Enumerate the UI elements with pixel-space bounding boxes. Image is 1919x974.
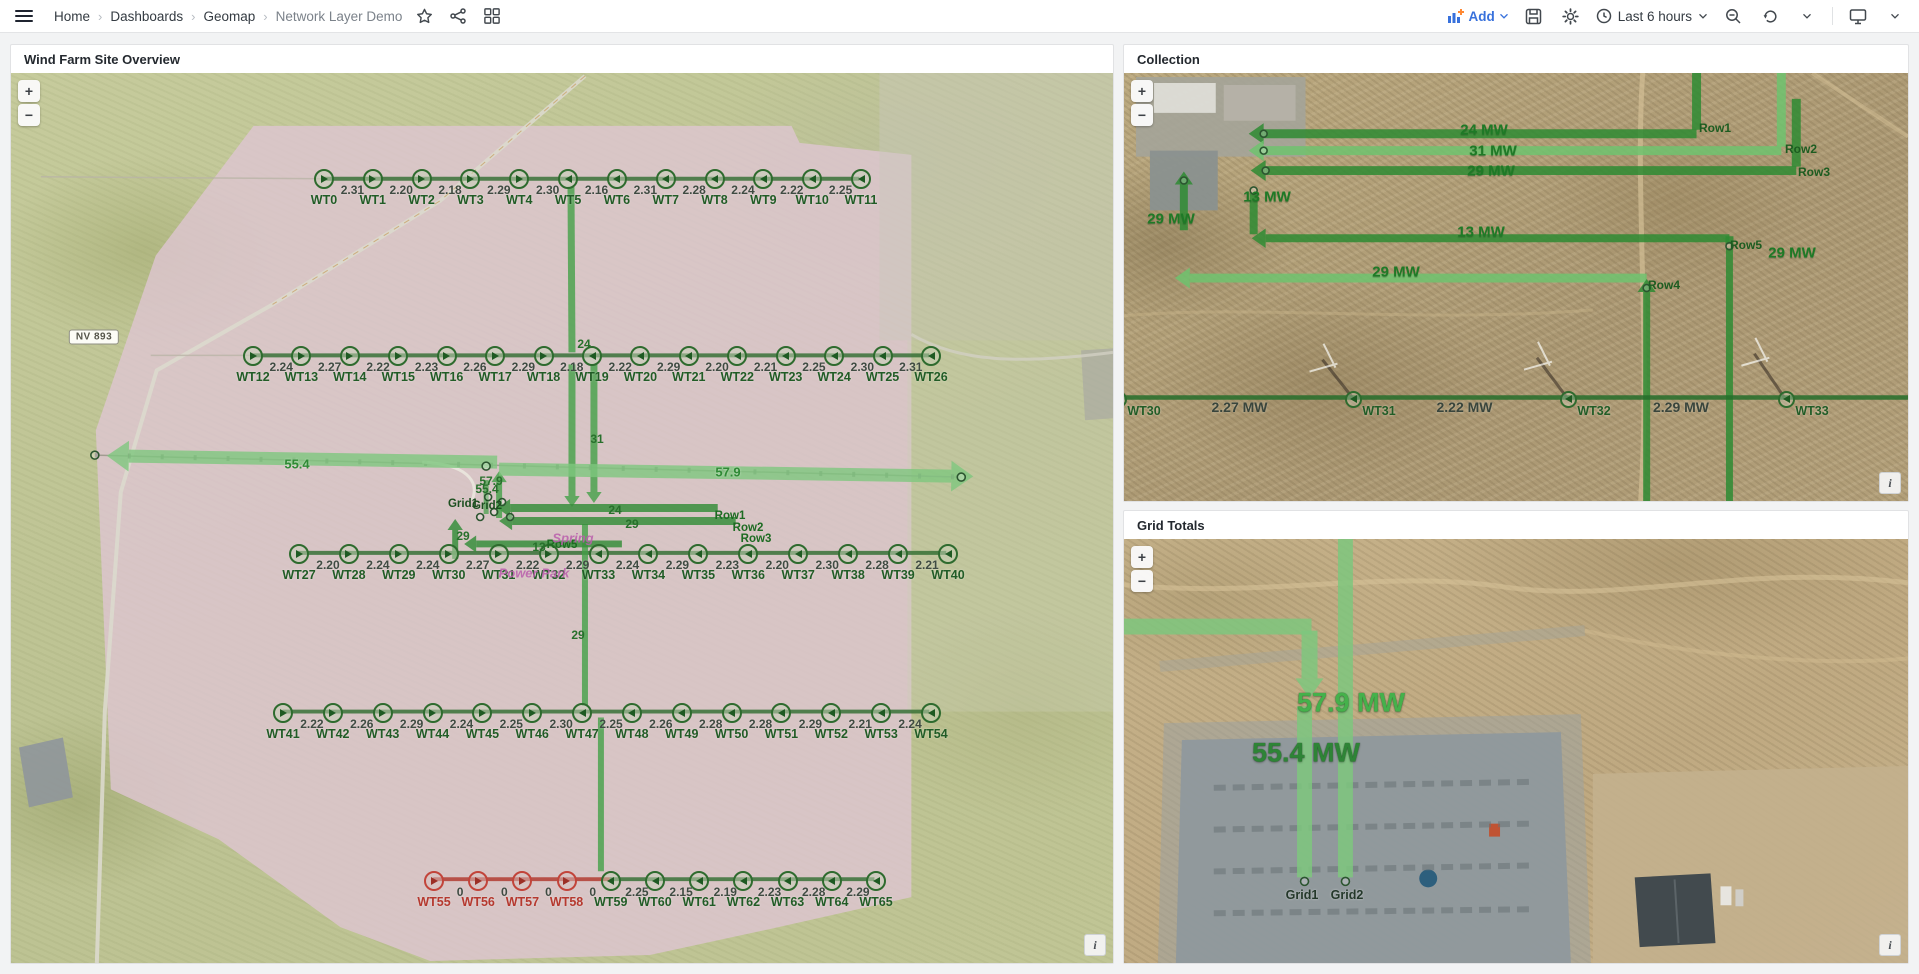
turbine-direction-icon [613, 175, 620, 183]
turbine-marker[interactable] [679, 346, 699, 366]
turbine-marker[interactable] [557, 871, 577, 891]
apps-icon[interactable] [480, 4, 504, 28]
kiosk-chevron-icon[interactable] [1883, 4, 1907, 28]
turbine-marker[interactable] [363, 169, 383, 189]
add-button[interactable]: Add [1447, 8, 1508, 24]
zoom-out-button[interactable]: − [18, 104, 40, 126]
add-chart-icon [1447, 8, 1464, 24]
turbine-direction-icon [431, 877, 438, 885]
turbine-marker[interactable] [672, 703, 692, 723]
turbine-direction-icon [298, 352, 305, 360]
turbine-marker[interactable] [243, 346, 263, 366]
turbine-direction-icon [745, 550, 752, 558]
turbine-direction-icon [495, 550, 502, 558]
zoom-out-button[interactable]: − [1131, 104, 1153, 126]
turbine-direction-icon [828, 877, 835, 885]
turbine-marker[interactable] [373, 703, 393, 723]
breadcrumb-separator: › [263, 9, 267, 24]
turbine-marker[interactable] [389, 544, 409, 564]
turbine-marker[interactable] [866, 871, 886, 891]
turbine-marker[interactable] [412, 169, 432, 189]
nav-divider [1832, 7, 1833, 25]
collection-map-overlay [1124, 73, 1908, 501]
turbine-direction-icon [728, 709, 735, 717]
turbine-direction-icon [589, 352, 596, 360]
turbine-direction-icon [467, 175, 474, 183]
turbine-marker[interactable] [314, 169, 334, 189]
turbine-direction-icon [760, 175, 767, 183]
turbine-direction-icon [928, 352, 935, 360]
zoom-out-button[interactable]: − [1131, 570, 1153, 592]
turbine-direction-icon [645, 550, 652, 558]
turbine-direction-icon [445, 550, 452, 558]
turbine-direction-icon [845, 550, 852, 558]
breadcrumb-current: Network Layer Demo [276, 9, 403, 24]
time-range-label: Last 6 hours [1618, 9, 1692, 24]
turbine-marker[interactable] [601, 871, 621, 891]
turbine-direction-icon [711, 175, 718, 183]
nav-right-group: Add Last 6 hours [1447, 4, 1907, 28]
turbine-marker[interactable] [622, 703, 642, 723]
turbine-marker[interactable] [851, 169, 871, 189]
turbine-marker[interactable] [778, 871, 798, 891]
breadcrumb-dashboards[interactable]: Dashboards [110, 9, 183, 24]
time-range-picker[interactable]: Last 6 hours [1596, 8, 1708, 24]
turbine-direction-icon [696, 877, 703, 885]
turbine-marker[interactable] [873, 346, 893, 366]
turbine-marker[interactable] [439, 544, 459, 564]
grid-map-overlay [1124, 539, 1908, 963]
turbine-marker[interactable] [938, 544, 958, 564]
turbine-marker[interactable] [1345, 391, 1362, 408]
turbine-marker[interactable] [822, 871, 842, 891]
turbine-direction-icon [516, 175, 523, 183]
turbine-marker[interactable] [1560, 391, 1577, 408]
panel-wind-farm-site-overview: Wind Farm Site Overview + − i WT02.31WT1… [10, 44, 1114, 964]
turbine-direction-icon [595, 550, 602, 558]
turbine-direction-icon [579, 709, 586, 717]
turbine-direction-icon [519, 877, 526, 885]
turbine-direction-icon [395, 550, 402, 558]
turbine-direction-icon [296, 550, 303, 558]
breadcrumb-home[interactable]: Home [54, 9, 90, 24]
breadcrumb-separator: › [191, 9, 195, 24]
turbine-marker[interactable] [437, 346, 457, 366]
turbine-marker[interactable] [323, 703, 343, 723]
turbine-direction-icon [637, 352, 644, 360]
turbine-marker[interactable] [340, 346, 360, 366]
zoom-in-button[interactable]: + [18, 80, 40, 102]
turbine-marker[interactable] [921, 346, 941, 366]
turbine-direction-icon [809, 175, 816, 183]
turbine-direction-icon [492, 352, 499, 360]
zoom-out-icon[interactable] [1721, 4, 1745, 28]
map-zoom-controls: + − [18, 80, 40, 126]
turbine-marker[interactable] [589, 544, 609, 564]
turbine-marker[interactable] [582, 346, 602, 366]
turbine-direction-icon [429, 709, 436, 717]
turbine-marker[interactable] [424, 871, 444, 891]
top-nav: Home › Dashboards › Geomap › Network Lay… [0, 0, 1919, 33]
turbine-direction-icon [879, 352, 886, 360]
turbine-direction-icon [740, 877, 747, 885]
clock-icon [1596, 8, 1612, 24]
monitor-icon[interactable] [1846, 4, 1870, 28]
grid-totals-map[interactable]: + − i 57.9 MW55.4 MWGrid1Grid2 [1124, 539, 1908, 963]
add-button-label: Add [1468, 9, 1494, 24]
turbine-direction-icon [540, 352, 547, 360]
turbine-marker[interactable] [722, 703, 742, 723]
panel-grid-totals: Grid Totals + − i 57.9 MW55.4 MWGrid1Gri… [1123, 510, 1909, 964]
turbine-marker[interactable] [289, 544, 309, 564]
turbine-direction-icon [878, 709, 885, 717]
menu-icon[interactable] [12, 4, 36, 28]
turbine-marker[interactable] [888, 544, 908, 564]
turbine-marker[interactable] [489, 544, 509, 564]
panel-collection: Collection + − i WT302.27 MWWT312.22 MWW… [1123, 44, 1909, 502]
turbine-direction-icon [858, 175, 865, 183]
map-zoom-controls: + − [1131, 80, 1153, 126]
turbine-direction-icon [782, 352, 789, 360]
turbine-direction-icon [1783, 395, 1790, 403]
app-window: Home › Dashboards › Geomap › Network Lay… [0, 0, 1919, 974]
wind-farm-map[interactable]: + − i WT02.31WT12.20WT22.18WT32.29WT42.3… [11, 73, 1113, 963]
panel-title[interactable]: Collection [1137, 52, 1200, 67]
turbine-direction-icon [346, 352, 353, 360]
save-icon[interactable] [1522, 4, 1546, 28]
panel-header[interactable]: Collection [1124, 45, 1908, 73]
zoom-in-button[interactable]: + [1131, 80, 1153, 102]
chevron-down-icon [1698, 13, 1708, 20]
turbine-direction-icon [321, 175, 328, 183]
chevron-down-icon [1499, 13, 1509, 20]
turbine-direction-icon [895, 550, 902, 558]
map-info-button[interactable]: i [1084, 934, 1106, 956]
turbine-marker[interactable] [273, 703, 293, 723]
breadcrumb-geomap[interactable]: Geomap [204, 9, 256, 24]
turbine-direction-icon [565, 175, 572, 183]
turbine-marker[interactable] [1778, 391, 1795, 408]
turbine-marker[interactable] [921, 703, 941, 723]
turbine-direction-icon [652, 877, 659, 885]
turbine-marker[interactable] [705, 169, 725, 189]
turbine-direction-icon [607, 877, 614, 885]
turbine-marker[interactable] [534, 346, 554, 366]
turbine-direction-icon [529, 709, 536, 717]
turbine-marker[interactable] [572, 703, 592, 723]
turbine-direction-icon [545, 550, 552, 558]
turbine-direction-icon [418, 175, 425, 183]
windfarm-map-overlay [11, 73, 1113, 963]
map-info-button[interactable]: i [1879, 472, 1901, 494]
turbine-marker[interactable] [838, 544, 858, 564]
turbine-direction-icon [443, 352, 450, 360]
turbine-direction-icon [563, 877, 570, 885]
turbine-direction-icon [778, 709, 785, 717]
share-icon[interactable] [446, 4, 470, 28]
turbine-marker[interactable] [539, 544, 559, 564]
panel-header[interactable]: Grid Totals [1124, 511, 1908, 539]
turbine-direction-icon [345, 550, 352, 558]
panel-title[interactable]: Grid Totals [1137, 518, 1205, 533]
turbine-direction-icon [928, 709, 935, 717]
zoom-in-button[interactable]: + [1131, 546, 1153, 568]
turbine-direction-icon [1565, 395, 1572, 403]
turbine-direction-icon [784, 877, 791, 885]
turbine-direction-icon [475, 877, 482, 885]
turbine-direction-icon [873, 877, 880, 885]
turbine-direction-icon [734, 352, 741, 360]
turbine-marker[interactable] [776, 346, 796, 366]
turbine-direction-icon [479, 709, 486, 717]
turbine-direction-icon [685, 352, 692, 360]
turbine-direction-icon [628, 709, 635, 717]
panel-title[interactable]: Wind Farm Site Overview [24, 52, 180, 67]
turbine-direction-icon [662, 175, 669, 183]
breadcrumb: Home › Dashboards › Geomap › Network Lay… [54, 9, 402, 24]
turbine-direction-icon [395, 352, 402, 360]
turbine-direction-icon [379, 709, 386, 717]
turbine-direction-icon [945, 550, 952, 558]
turbine-direction-icon [1350, 395, 1357, 403]
star-icon[interactable] [412, 4, 436, 28]
turbine-marker[interactable] [558, 169, 578, 189]
map-info-button[interactable]: i [1879, 934, 1901, 956]
turbine-direction-icon [828, 709, 835, 717]
refresh-icon[interactable] [1758, 4, 1782, 28]
collection-map[interactable]: + − i WT302.27 MWWT312.22 MWWT322.29 MWW… [1124, 73, 1908, 501]
turbine-marker[interactable] [871, 703, 891, 723]
breadcrumb-separator: › [98, 9, 102, 24]
turbine-marker[interactable] [485, 346, 505, 366]
turbine-direction-icon [831, 352, 838, 360]
map-zoom-controls: + − [1131, 546, 1153, 592]
turbine-marker[interactable] [645, 871, 665, 891]
panel-header[interactable]: Wind Farm Site Overview [11, 45, 1113, 73]
turbine-direction-icon [795, 550, 802, 558]
turbine-marker[interactable] [656, 169, 676, 189]
turbine-direction-icon [280, 709, 287, 717]
nav-left-group: Home › Dashboards › Geomap › Network Lay… [12, 4, 504, 28]
turbine-direction-icon [695, 550, 702, 558]
turbine-direction-icon [329, 709, 336, 717]
turbine-marker[interactable] [423, 703, 443, 723]
refresh-interval-chevron-icon[interactable] [1795, 4, 1819, 28]
turbine-direction-icon [678, 709, 685, 717]
turbine-marker[interactable] [607, 169, 627, 189]
turbine-marker[interactable] [824, 346, 844, 366]
turbine-direction-icon [369, 175, 376, 183]
settings-icon[interactable] [1559, 4, 1583, 28]
turbine-direction-icon [250, 352, 257, 360]
turbine-marker[interactable] [339, 544, 359, 564]
